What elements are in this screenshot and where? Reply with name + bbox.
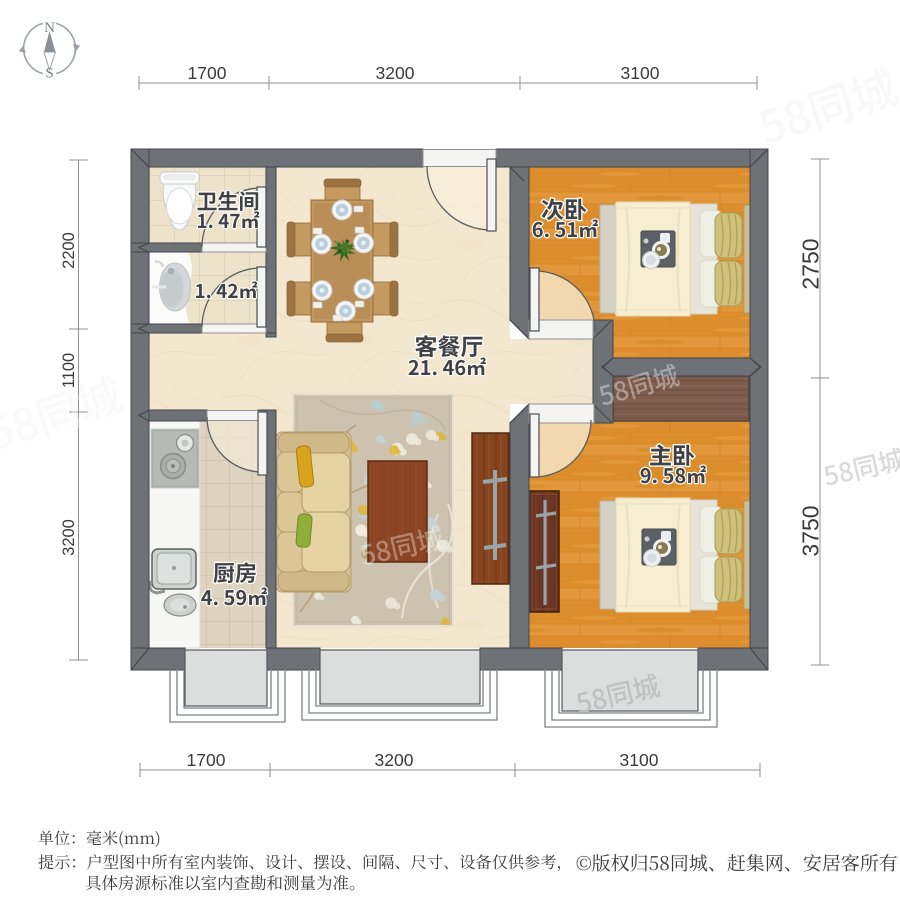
- svg-text:3200: 3200: [375, 750, 414, 770]
- svg-text:1700: 1700: [187, 750, 226, 770]
- svg-text:3200: 3200: [376, 63, 415, 83]
- svg-text:3100: 3100: [621, 63, 660, 83]
- svg-text:3100: 3100: [620, 750, 659, 770]
- svg-text:1700: 1700: [188, 63, 227, 83]
- svg-text:2200: 2200: [60, 232, 78, 269]
- svg-text:N: N: [44, 20, 55, 36]
- svg-text:3750: 3750: [798, 505, 824, 556]
- svg-text:3200: 3200: [60, 519, 78, 556]
- svg-text:2750: 2750: [798, 238, 824, 289]
- svg-text:S: S: [45, 66, 53, 82]
- svg-text:1100: 1100: [60, 353, 78, 388]
